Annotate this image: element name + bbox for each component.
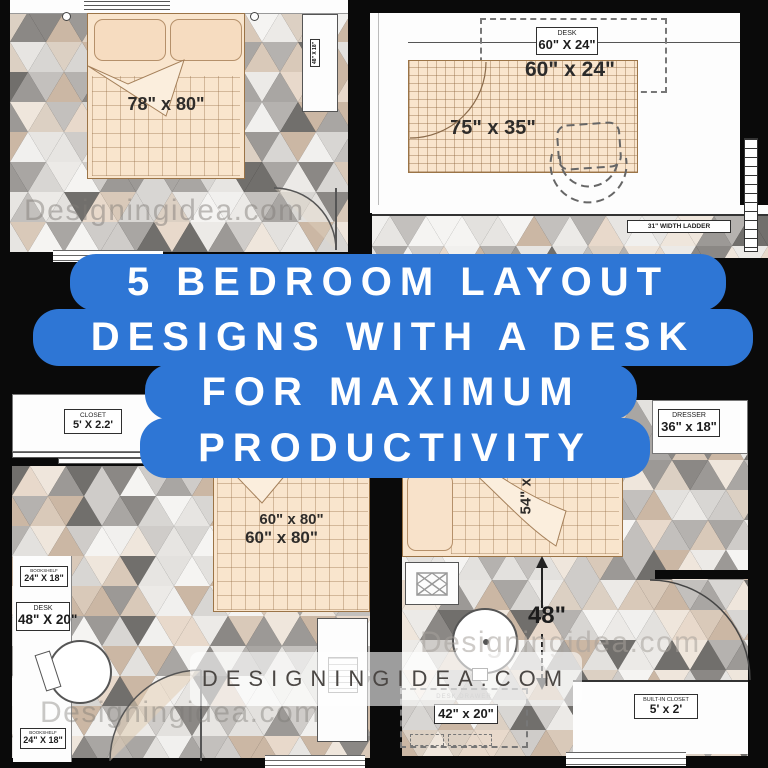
side-table-icon xyxy=(416,572,448,596)
bookshelf-size: 24" X 18" xyxy=(22,574,66,584)
clearance-label: 48" xyxy=(512,604,582,628)
blanket-fold-icon xyxy=(88,58,188,128)
door-arc-icon xyxy=(408,60,488,140)
door-threshold xyxy=(566,752,686,766)
pillow-icon xyxy=(407,473,453,551)
window-icon xyxy=(84,1,170,11)
desk-label-box: DESK 60" X 24" xyxy=(536,27,598,55)
closet-size: 5' X 2.2' xyxy=(66,419,120,431)
bookshelf-size: 24" X 18" xyxy=(22,736,64,746)
wall-bottom xyxy=(372,205,768,216)
title-line-2: DESIGNS WITH A DESK xyxy=(33,309,753,366)
bookshelf-label-box: BOOKSHELF 24" X 18" xyxy=(20,566,68,587)
drawer-icon xyxy=(410,734,444,746)
title-line-4: PRODUCTIVITY xyxy=(140,418,650,478)
builtin-closet-label-box: BUILT-IN CLOSET 5' x 2' xyxy=(634,694,698,719)
pillow-icon xyxy=(94,19,166,61)
curtain-hook-icon xyxy=(62,12,71,21)
side-table xyxy=(405,562,459,605)
dresser-label-box: DRESSER 36" x 18" xyxy=(658,409,720,437)
desk-size-box: 42" x 20" xyxy=(434,704,498,724)
dimension-arrow-up-icon xyxy=(528,556,556,608)
dresser-size: 36" x 18" xyxy=(660,420,718,434)
bookshelf-label-box: BOOKSHELF 24" X 18" xyxy=(20,728,66,749)
side-desk-label: 48" X 18" xyxy=(310,39,320,67)
bed-size-label: 78" x 80" xyxy=(88,94,244,115)
pillow-icon xyxy=(170,19,242,61)
wall-line xyxy=(378,13,379,213)
desk-size: 60" X 24" xyxy=(538,38,596,52)
bed-size-label: 60" x 80" xyxy=(214,511,369,528)
side-desk: 48" X 18" xyxy=(302,14,338,112)
desk-label-box: DESK 48" X 20" xyxy=(16,602,70,631)
title-line-3: FOR MAXIMUM xyxy=(145,364,637,420)
pin-graphic: 78" x 80" 48" X 18" DESK 60" X 24" 60" x… xyxy=(0,0,768,768)
desk-size-large: 60" x 24" xyxy=(500,59,640,80)
desk-size: 48" X 20" xyxy=(18,613,68,628)
ladder-icon xyxy=(744,138,758,252)
curtain-hook-icon xyxy=(250,12,259,21)
drawer-icon xyxy=(448,734,492,746)
wall-strip xyxy=(370,13,409,213)
wall-top-left xyxy=(10,0,348,14)
bed-top-left: 78" x 80" xyxy=(87,13,245,179)
ladder-label-box: 31" WIDTH LADDER xyxy=(627,220,731,233)
watermark: Designingidea.com xyxy=(24,194,305,228)
desk-chair-dashed-icon xyxy=(542,112,642,212)
desk-chair-icon xyxy=(48,640,112,704)
title-line-1: 5 BEDROOM LAYOUT xyxy=(70,254,726,311)
closet-title: CLOSET xyxy=(66,412,120,419)
site-banner: DESIGNINGIDEA.COM xyxy=(190,652,582,706)
door-threshold xyxy=(265,755,365,768)
builtin-closet-size: 5' x 2' xyxy=(636,703,696,716)
closet-label-box: CLOSET 5' X 2.2' xyxy=(64,409,122,434)
bed-size-label: 60" x 80" xyxy=(204,528,359,548)
